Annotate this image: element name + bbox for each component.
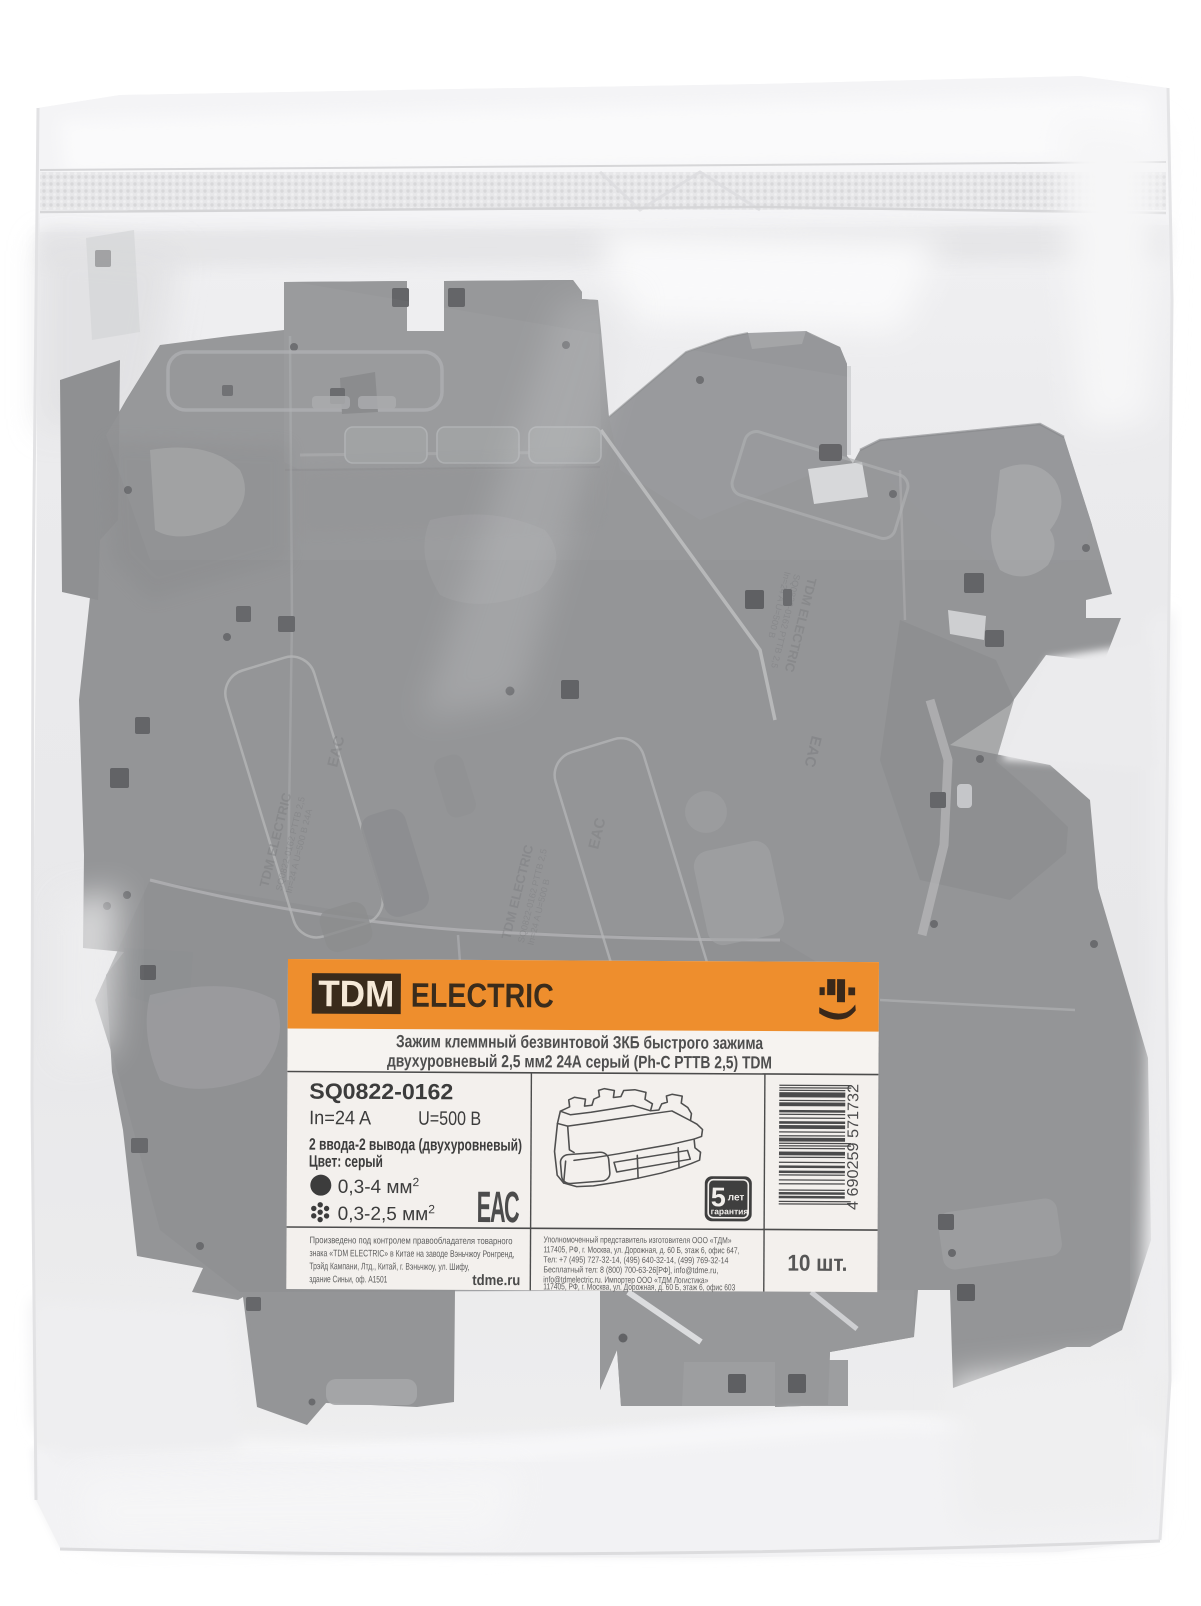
svg-text:10 шт.: 10 шт. [787,1250,847,1276]
svg-text:In=24 A: In=24 A [309,1107,371,1129]
svg-text:лет: лет [728,1192,745,1203]
svg-text:0,3-2,5 мм2: 0,3-2,5 мм2 [338,1202,436,1226]
svg-text:Трэйд Кампани, Лтд., Китай, г.: Трэйд Кампани, Лтд., Китай, г. Вэньчжоу,… [309,1261,469,1273]
svg-text:SQ0822-0162: SQ0822-0162 [309,1079,453,1105]
svg-text:гарантия: гарантия [711,1206,749,1216]
svg-text:Цвет: серый: Цвет: серый [309,1153,383,1171]
svg-text:tdme.ru: tdme.ru [472,1272,520,1289]
svg-text:ЕАС: ЕАС [477,1183,520,1232]
svg-text:Зажим клеммный безвинтовой ЗКБ: Зажим клеммный безвинтовой ЗКБ быстрого … [396,1031,763,1053]
svg-text:Произведено под контролем прав: Произведено под контролем правообладател… [309,1235,512,1247]
svg-text:знака «TDM ELECTRIC» в Китае н: знака «TDM ELECTRIC» в Китае на заводе В… [309,1248,514,1260]
svg-text:TDM: TDM [318,973,394,1014]
svg-text:0,3-4 мм2: 0,3-4 мм2 [338,1175,420,1198]
svg-text:двухуровневый 2,5 мм2 24А серы: двухуровневый 2,5 мм2 24А серый (Ph-C PT… [387,1051,772,1073]
svg-text:U=500 В: U=500 В [418,1108,481,1130]
svg-text:ELECTRIC: ELECTRIC [411,977,554,1016]
svg-text:здание Синьи, оф. А1501: здание Синьи, оф. А1501 [309,1274,387,1285]
svg-text:117405, РФ, г. Москва, ул. Дор: 117405, РФ, г. Москва, ул. Дорожная, д. … [543,1281,735,1292]
svg-text:4 690259 571732: 4 690259 571732 [845,1084,863,1210]
